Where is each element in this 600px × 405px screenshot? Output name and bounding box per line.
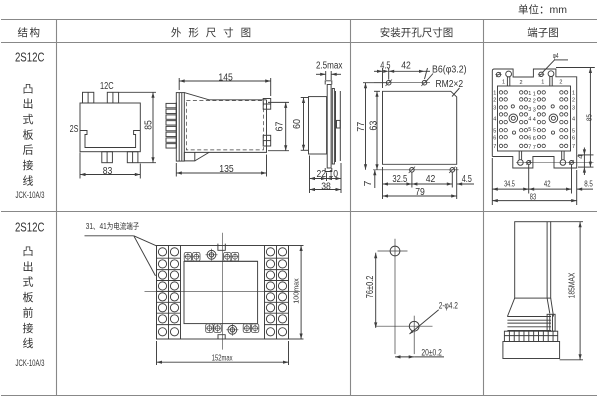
svg-text:B6(φ3.2): B6(φ3.2) <box>432 65 467 76</box>
svg-text:135: 135 <box>219 163 234 175</box>
svg-text:4.5: 4.5 <box>380 60 390 72</box>
svg-text:42: 42 <box>401 60 411 72</box>
svg-text:3: 3 <box>572 106 575 112</box>
svg-text:接: 接 <box>23 322 34 335</box>
svg-text:2S12C: 2S12C <box>15 50 45 65</box>
svg-text:外 形 尺 寸 图: 外 形 尺 寸 图 <box>171 26 253 39</box>
svg-text:67: 67 <box>273 121 285 131</box>
svg-text:线: 线 <box>23 336 34 350</box>
svg-text:线: 线 <box>23 173 34 187</box>
svg-text:1: 1 <box>533 91 536 97</box>
svg-text:7: 7 <box>362 180 374 186</box>
svg-text:85: 85 <box>143 120 155 130</box>
svg-text:7: 7 <box>493 144 496 150</box>
svg-text:4: 4 <box>572 117 575 123</box>
svg-text:2S12C: 2S12C <box>15 219 45 234</box>
svg-text:6: 6 <box>493 135 496 141</box>
svg-text:4: 4 <box>576 155 585 159</box>
svg-text:凸: 凸 <box>23 246 34 258</box>
svg-text:34.5: 34.5 <box>504 179 515 188</box>
svg-text:60: 60 <box>291 119 303 129</box>
svg-text:2: 2 <box>528 98 531 104</box>
svg-text:2: 2 <box>559 80 562 86</box>
svg-text:63: 63 <box>368 120 380 130</box>
svg-text:单位：mm: 单位：mm <box>518 3 567 16</box>
svg-text:2-φ4.2: 2-φ4.2 <box>439 301 458 312</box>
svg-text:4: 4 <box>493 117 496 123</box>
svg-text:端子图: 端子图 <box>527 26 559 39</box>
svg-text:3: 3 <box>528 107 531 113</box>
svg-text:JCK-10A/3: JCK-10A/3 <box>16 190 45 200</box>
svg-text:77: 77 <box>355 122 367 132</box>
svg-text:3: 3 <box>533 108 536 114</box>
svg-text:42: 42 <box>426 173 436 185</box>
svg-text:式: 式 <box>23 276 34 289</box>
svg-text:2S: 2S <box>70 123 79 135</box>
svg-text:145: 145 <box>218 72 233 84</box>
svg-text:4.5: 4.5 <box>462 173 472 185</box>
svg-text:38: 38 <box>321 180 331 192</box>
svg-text:7: 7 <box>533 145 536 151</box>
svg-text:1: 1 <box>493 91 496 97</box>
svg-text:φ4: φ4 <box>553 53 559 60</box>
svg-text:6: 6 <box>572 135 575 141</box>
svg-text:32.5: 32.5 <box>392 173 407 185</box>
svg-text:出: 出 <box>23 259 34 273</box>
svg-text:JCK-10A/3: JCK-10A/3 <box>16 358 45 368</box>
svg-text:1: 1 <box>502 80 505 86</box>
svg-text:板: 板 <box>23 290 34 304</box>
svg-text:式: 式 <box>23 113 34 126</box>
svg-text:后: 后 <box>23 144 34 157</box>
svg-text:5: 5 <box>572 128 575 134</box>
svg-text:出: 出 <box>23 97 34 111</box>
svg-text:6: 6 <box>533 136 536 142</box>
svg-text:2: 2 <box>533 99 536 105</box>
svg-text:85: 85 <box>585 114 594 121</box>
svg-text:100max: 100max <box>294 278 301 304</box>
svg-text:1: 1 <box>541 80 544 86</box>
svg-text:2.5max: 2.5max <box>316 61 343 72</box>
svg-text:79: 79 <box>415 186 425 198</box>
svg-text:12C: 12C <box>100 80 114 92</box>
svg-text:152max: 152max <box>212 352 233 362</box>
svg-text:42: 42 <box>544 179 551 188</box>
svg-text:5: 5 <box>493 128 496 134</box>
svg-text:1: 1 <box>528 91 531 97</box>
svg-text:3: 3 <box>493 106 496 112</box>
svg-text:4: 4 <box>528 117 531 123</box>
svg-text:5: 5 <box>528 127 531 133</box>
svg-text:185MAX: 185MAX <box>567 272 576 298</box>
svg-text:76±0.2: 76±0.2 <box>365 275 376 298</box>
svg-text:10: 10 <box>329 168 339 180</box>
svg-text:板: 板 <box>23 127 34 141</box>
svg-text:凸: 凸 <box>23 83 34 95</box>
svg-text:结构: 结构 <box>18 26 42 39</box>
svg-text:8.5: 8.5 <box>584 180 593 189</box>
svg-text:6: 6 <box>528 136 531 142</box>
svg-text:5: 5 <box>533 127 536 133</box>
svg-text:接: 接 <box>23 159 34 172</box>
svg-text:22: 22 <box>317 168 327 180</box>
svg-text:83: 83 <box>103 165 113 177</box>
svg-text:83: 83 <box>530 192 537 201</box>
svg-text:安装开孔尺寸图: 安装开孔尺寸图 <box>380 26 454 39</box>
svg-text:4: 4 <box>533 117 536 123</box>
svg-text:7: 7 <box>528 144 531 150</box>
svg-text:1: 1 <box>572 91 575 97</box>
svg-text:31、41为电流端子: 31、41为电流端子 <box>86 221 140 231</box>
svg-text:7: 7 <box>572 144 575 150</box>
svg-text:前: 前 <box>23 305 34 319</box>
svg-text:2: 2 <box>519 80 522 86</box>
svg-text:2: 2 <box>572 98 575 104</box>
svg-text:2: 2 <box>493 98 496 104</box>
